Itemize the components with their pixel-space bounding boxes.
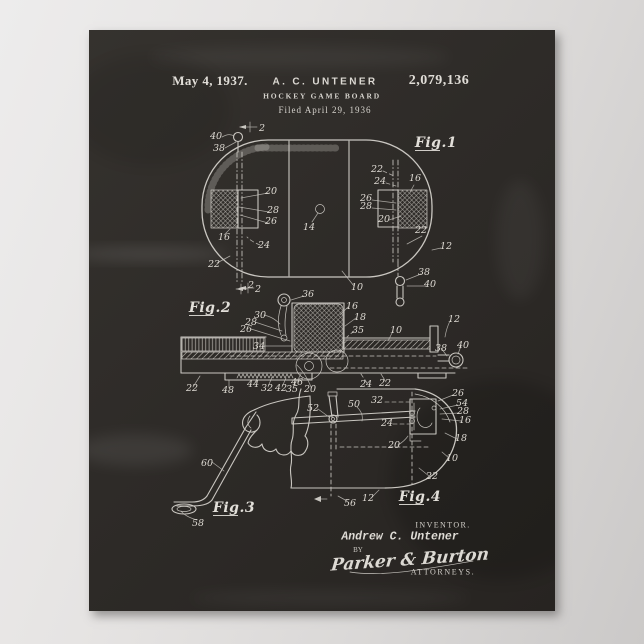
ref-numeral: 22 bbox=[207, 259, 220, 270]
product-photo-background: 4038222241626282020282614162422221210238… bbox=[0, 0, 644, 644]
ref-numeral: 52 bbox=[307, 403, 319, 414]
ref-numeral: 22 bbox=[425, 471, 438, 482]
ref-numeral: 60 bbox=[201, 458, 213, 469]
ref-numeral: 12 bbox=[448, 314, 460, 325]
patent-poster: 4038222241626282020282614162422221210238… bbox=[89, 30, 555, 611]
ref-numeral: 18 bbox=[354, 312, 366, 323]
figure-title: Fig.2 bbox=[188, 300, 231, 316]
ref-numeral: 44 bbox=[246, 379, 259, 390]
figure-title: Fig.4 bbox=[398, 489, 441, 505]
ref-numeral: 28 bbox=[359, 201, 372, 212]
ref-numeral: 32 bbox=[261, 383, 273, 394]
ref-numeral: 36 bbox=[302, 289, 314, 300]
inventor-caption: INVENTOR. bbox=[415, 521, 470, 530]
patent-date: May 4, 1937. bbox=[172, 73, 248, 89]
ref-numeral: 20 bbox=[387, 440, 400, 451]
inventor-signature-name: Andrew C. Untener bbox=[341, 531, 458, 544]
ref-numeral: 26 bbox=[264, 216, 277, 227]
ref-numeral: 2 bbox=[254, 284, 261, 295]
ref-numeral: 24 bbox=[359, 379, 372, 390]
ref-numeral: 34 bbox=[253, 341, 265, 352]
ref-numeral: 2 bbox=[258, 123, 265, 134]
patent-number: 2,079,136 bbox=[409, 73, 470, 89]
ref-numeral: 12 bbox=[440, 241, 452, 252]
ref-numeral: 22 bbox=[378, 378, 391, 389]
inventor-name-header: A. C. UNTENER bbox=[272, 77, 377, 88]
ref-numeral: 10 bbox=[446, 453, 458, 464]
filing-date: Filed April 29, 1936 bbox=[278, 105, 371, 115]
ref-numeral: 38 bbox=[213, 143, 225, 154]
ref-numeral: 24 bbox=[257, 240, 270, 251]
ref-numeral: 20 bbox=[303, 384, 316, 395]
ref-numeral: 50 bbox=[348, 399, 360, 410]
ref-numeral: 32 bbox=[371, 395, 383, 406]
ref-numeral: 10 bbox=[390, 325, 402, 336]
attorneys-caption: ATTORNEYS. bbox=[411, 568, 476, 577]
ref-numeral: 24 bbox=[380, 418, 393, 429]
ref-numeral: 48 bbox=[221, 385, 234, 396]
ref-numeral: 16 bbox=[218, 232, 230, 243]
ref-numeral: 56 bbox=[344, 498, 356, 509]
fig1-rink-top-view bbox=[202, 122, 441, 306]
ref-numeral: 10 bbox=[351, 282, 363, 293]
ref-numeral: 28 bbox=[266, 205, 279, 216]
ref-numeral: 2 bbox=[247, 280, 254, 291]
ref-numeral: 40 bbox=[456, 340, 469, 351]
ref-numeral: 22 bbox=[414, 225, 427, 236]
ref-numeral: 40 bbox=[209, 131, 222, 142]
ref-numeral: 38 bbox=[418, 267, 430, 278]
ref-numeral: 40 bbox=[423, 279, 436, 290]
ref-numeral: 16 bbox=[459, 415, 471, 426]
ref-numeral: 16 bbox=[346, 301, 358, 312]
ref-numeral: 26 bbox=[239, 324, 252, 335]
ref-numeral: 16 bbox=[409, 173, 421, 184]
ref-numeral: 14 bbox=[303, 222, 315, 233]
ref-numeral: 38 bbox=[435, 343, 447, 354]
ref-numeral: 20 bbox=[377, 214, 390, 225]
ref-numeral: 22 bbox=[185, 383, 198, 394]
ref-numeral: 24 bbox=[373, 176, 386, 187]
ref-numeral: 35 bbox=[352, 325, 364, 336]
patent-drawing: 4038222241626282020282614162422221210238… bbox=[89, 30, 555, 611]
ref-numeral: 20 bbox=[264, 186, 277, 197]
ref-numeral: 58 bbox=[192, 518, 204, 529]
ref-numeral: 12 bbox=[362, 493, 374, 504]
patent-title: HOCKEY GAME BOARD bbox=[263, 92, 381, 101]
figure-title: Fig.1 bbox=[414, 135, 457, 151]
ref-numeral: 22 bbox=[370, 164, 383, 175]
ref-numeral: 46 bbox=[290, 377, 303, 388]
figure-title: Fig.3 bbox=[212, 500, 255, 516]
ref-numeral: 18 bbox=[455, 433, 467, 444]
